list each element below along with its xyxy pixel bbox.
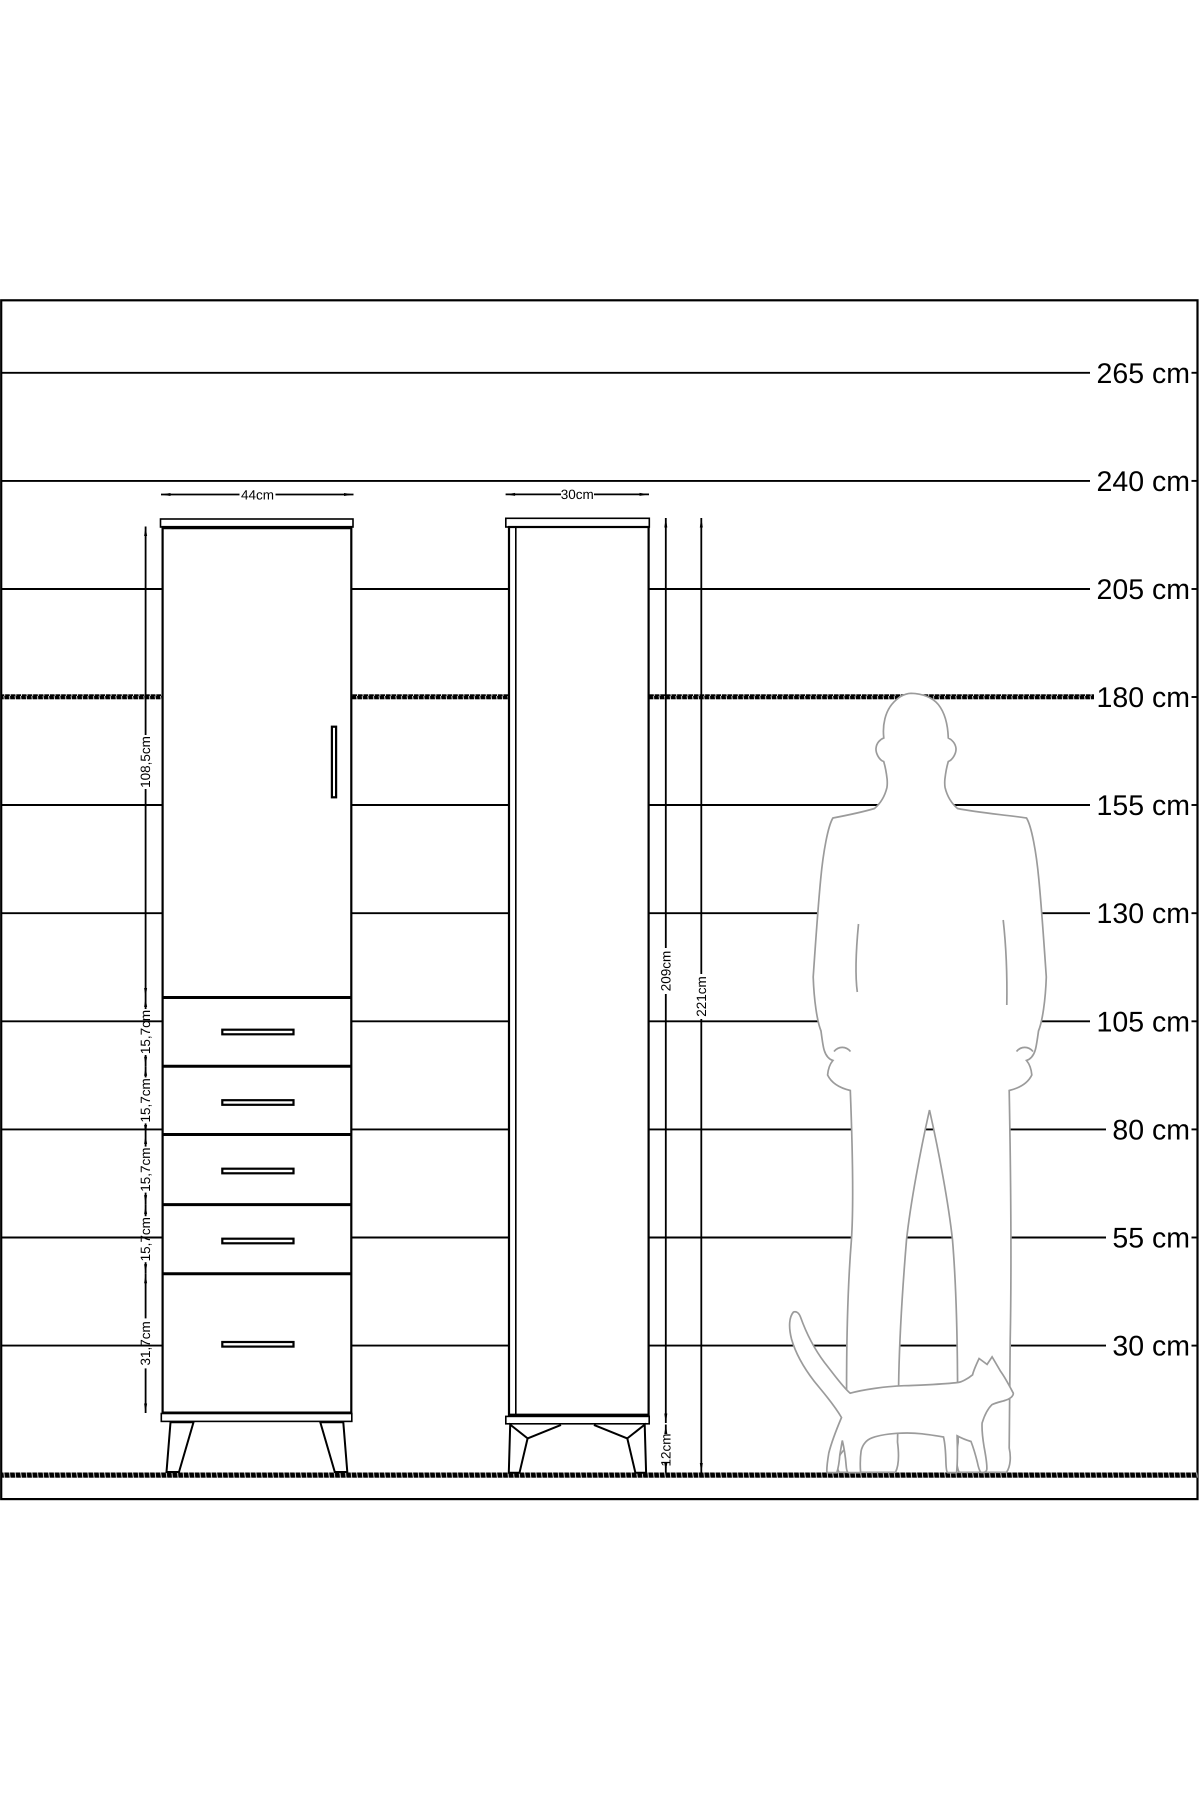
- svg-text:240 cm: 240 cm: [1097, 466, 1190, 498]
- svg-text:265 cm: 265 cm: [1097, 358, 1190, 390]
- svg-text:205 cm: 205 cm: [1097, 574, 1190, 606]
- svg-text:44cm: 44cm: [241, 487, 274, 502]
- svg-text:15,7cm: 15,7cm: [138, 1217, 153, 1261]
- svg-text:31,7cm: 31,7cm: [138, 1321, 153, 1365]
- svg-text:30 cm: 30 cm: [1112, 1331, 1190, 1363]
- svg-text:130 cm: 130 cm: [1097, 898, 1190, 930]
- svg-text:12cm: 12cm: [658, 1433, 673, 1466]
- svg-text:221cm: 221cm: [694, 976, 709, 1017]
- svg-text:80 cm: 80 cm: [1112, 1114, 1190, 1146]
- svg-text:155 cm: 155 cm: [1097, 790, 1190, 822]
- svg-text:180 cm: 180 cm: [1097, 682, 1190, 714]
- svg-text:30cm: 30cm: [561, 487, 594, 502]
- svg-text:55 cm: 55 cm: [1112, 1223, 1190, 1255]
- svg-text:105 cm: 105 cm: [1097, 1006, 1190, 1038]
- svg-text:209cm: 209cm: [658, 951, 673, 992]
- svg-text:15,7cm: 15,7cm: [138, 1010, 153, 1054]
- svg-text:15,7cm: 15,7cm: [138, 1078, 153, 1122]
- svg-text:15,7cm: 15,7cm: [138, 1147, 153, 1191]
- svg-text:108,5cm: 108,5cm: [138, 736, 153, 788]
